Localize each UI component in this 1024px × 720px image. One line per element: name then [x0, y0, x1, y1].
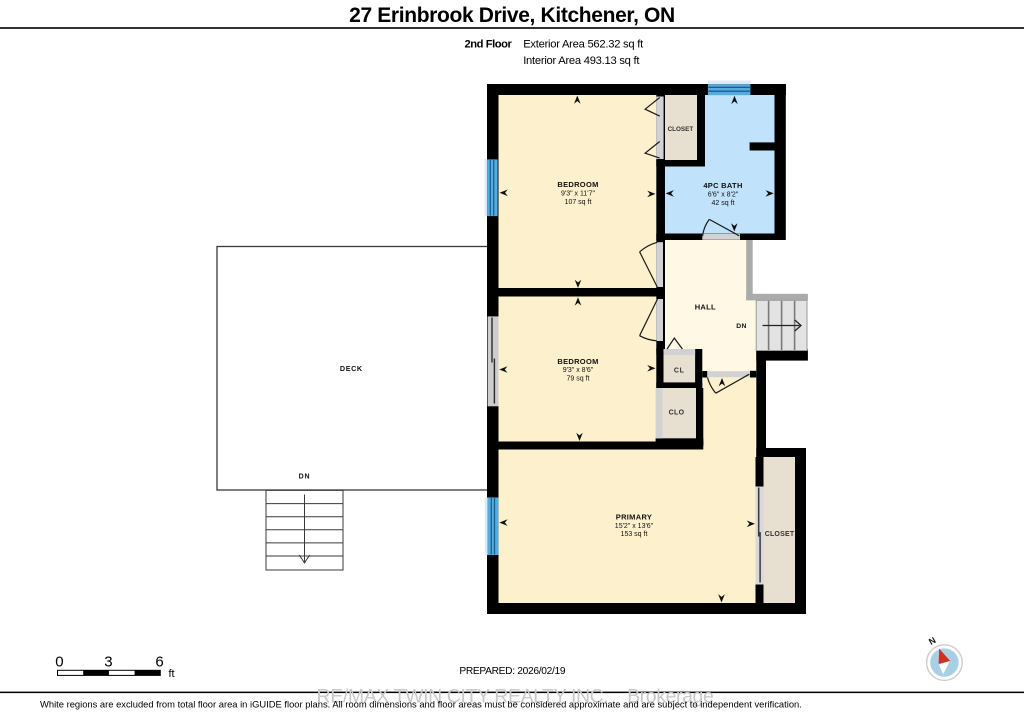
svg-text:DN: DN — [299, 473, 311, 480]
svg-text:79 sq ft: 79 sq ft — [567, 375, 590, 382]
svg-text:153 sq ft: 153 sq ft — [621, 531, 648, 538]
svg-text:HALL: HALL — [695, 303, 716, 312]
svg-text:BEDROOM: BEDROOM — [557, 180, 598, 189]
svg-text:CL: CL — [674, 368, 685, 375]
svg-text:CLO: CLO — [669, 410, 685, 417]
svg-text:4PC BATH: 4PC BATH — [703, 181, 742, 190]
svg-text:PREPARED: 2026/02/19: PREPARED: 2026/02/19 — [459, 666, 566, 677]
svg-text:107 sq ft: 107 sq ft — [565, 199, 592, 206]
svg-text:6'6" x 8'2": 6'6" x 8'2" — [708, 192, 739, 199]
svg-text:N: N — [927, 635, 938, 647]
svg-text:0: 0 — [55, 654, 63, 671]
svg-text:6: 6 — [155, 654, 163, 671]
svg-text:15'2" x 13'6": 15'2" x 13'6" — [615, 523, 654, 530]
svg-text:CLOSET: CLOSET — [668, 126, 694, 133]
svg-text:42 sq ft: 42 sq ft — [712, 200, 735, 207]
svg-text:2nd Floor: 2nd Floor — [465, 39, 513, 51]
svg-text:BEDROOM: BEDROOM — [557, 357, 598, 366]
svg-text:Exterior Area 562.32 sq ft: Exterior Area 562.32 sq ft — [523, 39, 644, 51]
svg-text:3: 3 — [104, 654, 112, 671]
svg-text:ft: ft — [169, 668, 175, 680]
svg-text:9'3" x 11'7": 9'3" x 11'7" — [561, 190, 595, 197]
svg-text:DN: DN — [736, 323, 747, 330]
svg-text:DECK: DECK — [340, 364, 363, 373]
svg-text:White regions are excluded fro: White regions are excluded from total fl… — [40, 699, 802, 710]
svg-text:9'3" x 8'6": 9'3" x 8'6" — [563, 367, 594, 374]
svg-text:27 Erinbrook Drive, Kitchener,: 27 Erinbrook Drive, Kitchener, ON — [349, 4, 675, 27]
svg-text:PRIMARY: PRIMARY — [616, 513, 652, 522]
svg-text:CLOSET: CLOSET — [765, 531, 795, 538]
svg-text:Interior Area 493.13 sq ft: Interior Area 493.13 sq ft — [523, 55, 640, 67]
